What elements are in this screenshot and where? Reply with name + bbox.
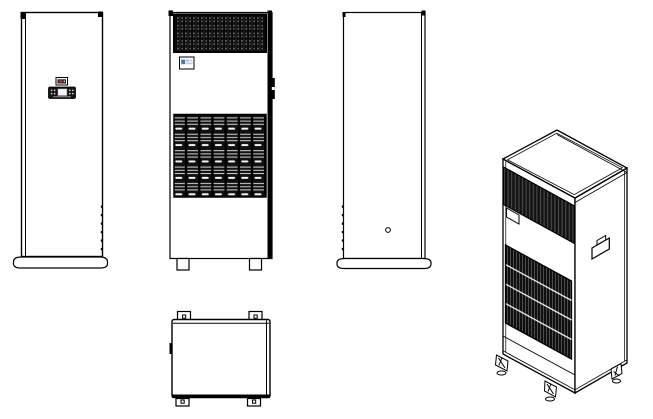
- foot-right: [250, 259, 262, 271]
- top-left-mark: [343, 12, 346, 17]
- louver-intake-grille: [174, 115, 266, 198]
- drawing-canvas: Floor-standing cabinet air conditioning …: [0, 0, 653, 419]
- top-right-mark: [422, 11, 426, 16]
- mounting-tab: [248, 399, 261, 407]
- view-front-grilles: [169, 11, 275, 271]
- bottom-edge-band: [172, 395, 270, 399]
- view-isometric: [496, 130, 628, 401]
- left-edge-mark: [170, 343, 173, 354]
- side-face: [575, 168, 627, 393]
- technical-drawing: Floor-standing cabinet air conditioning …: [0, 0, 653, 419]
- mounting-tab: [249, 312, 262, 321]
- mounting-tab: [178, 312, 191, 321]
- mounting-tab: [176, 399, 189, 407]
- top-left-hinge-mark: [21, 12, 26, 19]
- top-right-hinge-mark: [98, 12, 103, 18]
- top-left-mark: [169, 11, 174, 17]
- caster: [545, 381, 557, 401]
- top-outlet-grille: [174, 15, 266, 53]
- controller-panel: [49, 87, 76, 99]
- indicator-badge: [56, 78, 68, 86]
- door-handle: [272, 78, 275, 99]
- view-side: [337, 11, 431, 269]
- view-top: [170, 312, 271, 407]
- brand-label: [180, 57, 195, 69]
- pedestal-base: [14, 257, 108, 268]
- caster: [496, 355, 509, 375]
- red-indicator: [59, 80, 63, 82]
- foot-left: [177, 259, 189, 271]
- cabinet-body: [22, 13, 103, 257]
- pedestal-base: [337, 259, 431, 269]
- cabinet-top-outline: [172, 320, 270, 398]
- cabinet-body: [344, 13, 426, 259]
- right-edge-band: [268, 11, 273, 259]
- port-hole: [386, 228, 391, 233]
- feet: [177, 259, 262, 271]
- view-front-panel: [14, 12, 108, 269]
- lcd-display: [58, 89, 67, 96]
